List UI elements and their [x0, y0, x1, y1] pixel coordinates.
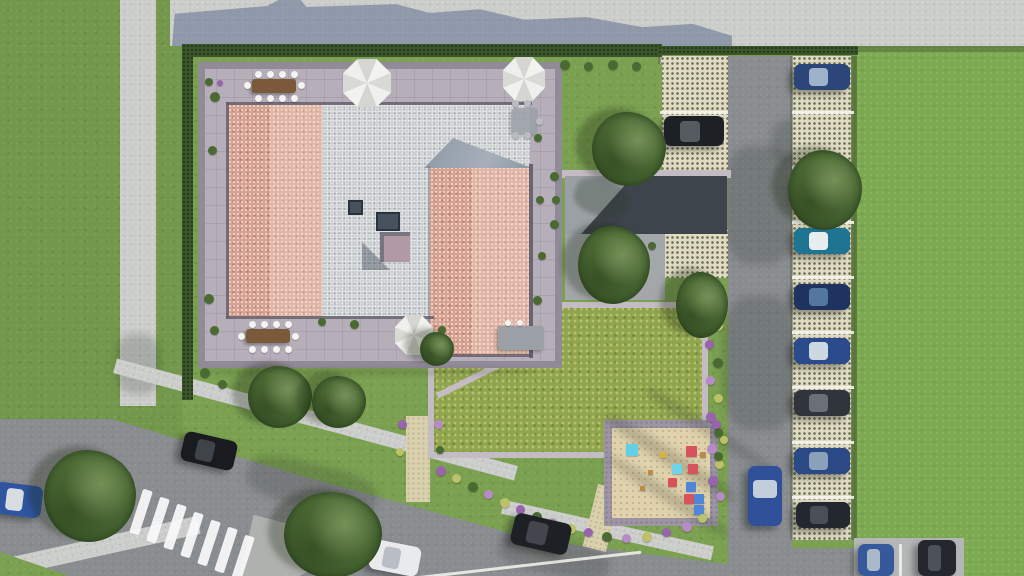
patio-chair — [255, 71, 262, 78]
paver-stalls-northwest — [660, 56, 728, 174]
hedge-parking-east — [851, 56, 857, 540]
shrub — [648, 242, 656, 250]
visitor-car-blue — [858, 544, 894, 576]
play-mat — [640, 486, 645, 491]
shrub — [632, 62, 641, 71]
patio-chair — [249, 346, 256, 353]
aisle-exit-apron — [792, 548, 856, 576]
patio-furniture — [536, 118, 543, 125]
roof-west-wing-highlight — [270, 104, 322, 318]
patio-chair — [267, 95, 274, 102]
meadow-border-south — [428, 452, 618, 458]
car-windshield — [809, 288, 828, 306]
car-windshield — [5, 487, 24, 511]
flower-bush-yellow — [396, 448, 404, 456]
parked-car-navy-2 — [794, 284, 850, 310]
roof-edge-south — [226, 316, 434, 319]
shrub — [536, 196, 544, 204]
patio-chair — [291, 71, 298, 78]
flower-bush-violet — [484, 490, 493, 499]
shrub — [608, 60, 618, 70]
hedge-north — [182, 44, 662, 57]
flower-bush-violet — [622, 534, 631, 543]
flower-bush-violet — [434, 420, 443, 429]
lounge-set-northeast — [512, 108, 538, 134]
car-windshield — [525, 520, 549, 546]
patio-chair — [244, 82, 251, 89]
shrub — [714, 452, 723, 461]
patio-chair — [505, 320, 511, 326]
flower-bush-yellow — [720, 436, 728, 444]
patio-chair — [261, 346, 268, 353]
shrub — [560, 60, 570, 70]
parking-stall-divider — [792, 441, 854, 444]
parked-car-teal — [794, 228, 850, 254]
shrub — [550, 220, 559, 229]
car-windshield — [928, 545, 941, 570]
car-windshield — [753, 480, 778, 498]
play-mat — [686, 446, 697, 457]
parking-stall-divider — [792, 331, 854, 334]
shrub — [584, 62, 593, 71]
flower-bush-purple — [705, 340, 714, 349]
shrub — [350, 320, 359, 329]
play-mat — [648, 470, 653, 475]
patio-chair — [279, 95, 286, 102]
flower-bush-yellow — [714, 394, 723, 403]
parked-car-blue-2 — [794, 448, 850, 474]
patio-chair — [273, 346, 280, 353]
visitor-pad-divider — [899, 544, 902, 576]
patio-furniture — [512, 132, 519, 139]
car-windshield — [810, 506, 828, 524]
play-mat — [626, 444, 638, 456]
shrub — [210, 326, 219, 335]
flower-bush-violet — [682, 522, 692, 532]
parking-stall-divider — [792, 496, 854, 499]
visitor-car-black — [918, 540, 956, 576]
shrub — [218, 380, 227, 389]
shrub — [538, 252, 546, 260]
shrub — [533, 296, 542, 305]
car-windshield — [809, 394, 828, 412]
play-mat — [672, 464, 682, 474]
patio-furniture — [524, 100, 531, 107]
roof-edge-west — [226, 102, 229, 318]
patio-table-south — [246, 329, 290, 343]
patio-chair — [279, 71, 286, 78]
patio-furniture — [524, 132, 531, 139]
shrub — [552, 196, 560, 204]
roof-gravel-center — [320, 104, 432, 318]
stall-kerb-aisle — [790, 56, 793, 540]
flower-bush-purple — [217, 80, 223, 86]
aisle-car-blue — [748, 466, 782, 526]
car-windshield — [809, 232, 828, 250]
flower-bush-yellow — [715, 460, 724, 469]
flower-bush-yellow — [452, 474, 461, 483]
play-mat — [694, 494, 704, 504]
car-windshield — [194, 438, 217, 463]
parking-stall-divider — [660, 111, 728, 114]
east-lawn — [856, 40, 1024, 576]
patio-chair — [291, 95, 298, 102]
footpath-street-entrance — [406, 416, 430, 502]
lawn-edge-northeast — [858, 46, 1024, 52]
patio-chair — [255, 95, 262, 102]
play-mat — [688, 464, 698, 474]
flower-bush-yellow — [500, 498, 510, 508]
patio-chair — [267, 71, 274, 78]
patio-table-north — [252, 79, 296, 93]
shrub — [204, 294, 214, 304]
parked-car-darkgray — [794, 390, 850, 416]
shrub — [713, 358, 723, 368]
play-mat — [700, 452, 706, 458]
flower-bush-yellow — [642, 532, 652, 542]
parked-car-black-nw — [664, 116, 724, 146]
parasol-north — [343, 59, 391, 107]
parked-car-blue — [794, 338, 850, 364]
shrub — [200, 368, 210, 378]
car-windshield — [809, 342, 828, 360]
car-windshield — [381, 545, 402, 569]
lounge-set-south — [498, 326, 544, 350]
flower-bush-purple — [662, 528, 671, 537]
car-windshield — [809, 452, 828, 470]
parking-stall-divider — [792, 111, 854, 114]
parked-car-black — [796, 502, 850, 528]
flower-bush-purple — [584, 528, 593, 537]
parking-stall-divider — [792, 386, 854, 389]
shrub — [208, 146, 217, 155]
hedge-northeast — [658, 46, 858, 55]
patio-chair — [292, 333, 299, 340]
meadow-border-west — [428, 364, 434, 458]
play-mat — [684, 494, 694, 504]
skylight-small — [348, 200, 363, 215]
shrub — [210, 92, 220, 102]
patio-chair — [273, 321, 280, 328]
flower-bush-purple — [398, 420, 407, 429]
play-mat — [668, 478, 677, 487]
shrub — [534, 134, 542, 142]
play-mat — [686, 482, 696, 492]
aisle-tree-shadow-2 — [722, 296, 796, 430]
patio-chair — [285, 346, 292, 353]
patio-furniture — [512, 100, 519, 107]
patio-chair — [238, 333, 245, 340]
chimney — [380, 232, 410, 262]
shrub — [550, 172, 559, 181]
car-windshield — [680, 121, 700, 142]
patio-chair — [261, 321, 268, 328]
tree — [284, 492, 382, 576]
flower-bush-purple — [708, 476, 718, 486]
flower-bush-violet — [716, 492, 725, 501]
car-windshield — [867, 549, 879, 571]
parking-stall-divider — [792, 276, 854, 279]
hedge-west — [182, 44, 193, 400]
skylight-large — [376, 212, 400, 231]
parked-car-navy-1 — [794, 64, 850, 90]
shrub — [436, 446, 444, 454]
patio-chair — [249, 321, 256, 328]
shrub — [468, 482, 478, 492]
shrub — [205, 78, 213, 86]
flower-bush-yellow — [698, 514, 707, 523]
flower-bush-purple — [712, 420, 721, 429]
flower-bush-purple — [436, 466, 446, 476]
patio-chair — [517, 320, 523, 326]
play-mat — [660, 452, 666, 458]
aerial-site-render — [0, 0, 1024, 576]
patio-chair — [298, 82, 305, 89]
car-windshield — [809, 68, 828, 86]
patio-chair — [285, 321, 292, 328]
shrub — [318, 318, 326, 326]
flower-bush-violet — [706, 376, 715, 385]
shrub — [602, 532, 612, 542]
